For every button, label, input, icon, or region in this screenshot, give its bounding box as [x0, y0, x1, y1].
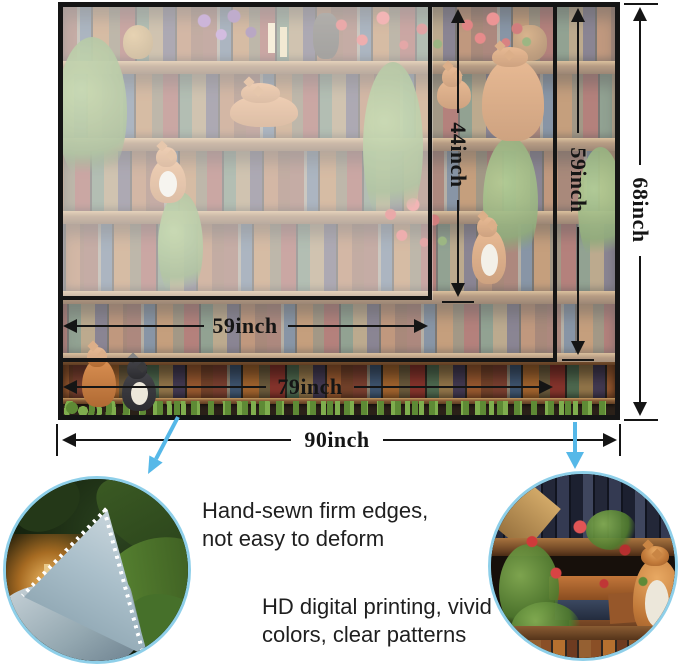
book-spines [491, 640, 678, 661]
product-size-infographic: 44inch 59inch 68inch 59inch 79inch [0, 0, 679, 665]
shelf-board [491, 626, 678, 640]
feature-printing-text: HD digital printing, vivid colors, clear… [262, 593, 492, 649]
dim-68inch-label: 68inch [628, 165, 652, 255]
callout-arrow-right-icon [564, 420, 588, 472]
print-detail-photo [488, 471, 678, 661]
cat-illustration [82, 359, 116, 407]
feature-edges-text: Hand-sewn firm edges, not easy to deform [202, 497, 428, 553]
feature-printing-line2: colors, clear patterns [262, 621, 492, 649]
dim-59inch-horizontal-label: 59inch [204, 314, 286, 338]
size-rect-59x44 [58, 2, 432, 300]
feature-printing-line1: HD digital printing, vivid [262, 593, 492, 621]
feature-edges-line1: Hand-sewn firm edges, [202, 497, 428, 525]
red-flowers [505, 508, 655, 613]
dim-59inch-vertical-label: 59inch [566, 135, 590, 225]
cat-illustration [122, 371, 156, 411]
fabric-corner-detail-photo [3, 476, 191, 664]
dim-44inch-label: 44inch [446, 110, 470, 200]
feature-edges-line2: not easy to deform [202, 525, 428, 553]
dim-90inch-label: 90inch [293, 428, 381, 452]
dim-79inch-label: 79inch [268, 375, 352, 399]
callout-arrow-left-icon [132, 413, 192, 479]
